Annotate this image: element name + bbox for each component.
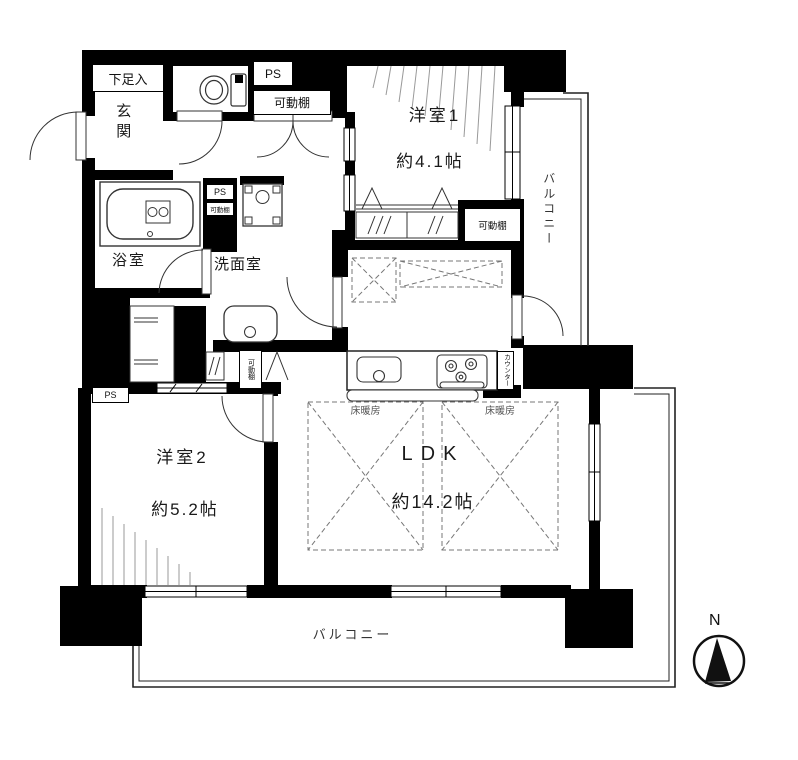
- counter-box: カウンター: [497, 351, 514, 390]
- movable-shelf-box: 可動棚: [464, 208, 521, 242]
- entrance-label: 玄関: [114, 103, 131, 143]
- balcony-right-label: バルコニー: [541, 172, 555, 247]
- room2-closet: [130, 306, 174, 382]
- vanity-sink-icon: [224, 306, 277, 342]
- washroom-label: 洗面室: [214, 256, 262, 273]
- floor-heating-label: 床暖房: [442, 406, 558, 418]
- ps-label: PS: [265, 67, 281, 81]
- room2-label: 洋室2: [120, 448, 245, 468]
- stove-icon: [437, 355, 487, 388]
- room1-label: 洋室1: [360, 106, 510, 126]
- compass-needle-icon: [705, 638, 731, 682]
- kitchen-counter: [347, 351, 497, 401]
- ldk-door: [287, 277, 342, 328]
- movable-shelf-label: 可動棚: [246, 359, 256, 380]
- ldk-right-window: [589, 424, 600, 521]
- refrigerator-space: [352, 258, 396, 302]
- room1-size-label: 約4.1帖: [355, 152, 505, 172]
- floor-heating-label: 床暖房: [308, 406, 423, 418]
- floor-heating-area: [308, 402, 423, 550]
- balcony-right-rail: [563, 93, 588, 346]
- shoe-storage-label: 下足入: [108, 69, 147, 88]
- ps-box: PS: [92, 387, 129, 403]
- toilet-icon: [200, 74, 246, 106]
- ps-box: PS: [253, 61, 293, 86]
- movable-shelf-label: 可動棚: [274, 94, 310, 111]
- service-balcony-door: [512, 295, 563, 339]
- toilet-door: [177, 111, 222, 164]
- floor-plan: 下足入 PS 可動棚 PS 可動棚 PS 可動棚 可動棚 カウンター 玄関 浴室…: [0, 0, 798, 760]
- ps-box: PS: [206, 184, 234, 200]
- bathroom-door: [159, 249, 211, 294]
- closet-sliding-door: [157, 383, 227, 393]
- hanger-icon: [362, 188, 382, 209]
- movable-shelf-label: 可動棚: [210, 204, 230, 214]
- kitchen-sink-icon: [357, 357, 401, 382]
- room2-size-label: 約5.2帖: [110, 500, 260, 520]
- balcony-bottom-label: バルコニー: [270, 628, 435, 643]
- storage-space: [400, 261, 502, 287]
- washer-pan-icon: [243, 184, 282, 226]
- room2-ceiling-hatch: [102, 508, 190, 585]
- north-label: N: [709, 612, 721, 630]
- ps-label: PS: [104, 390, 116, 400]
- hanger-icon: [432, 188, 452, 209]
- entrance-door: [30, 112, 86, 160]
- compass: [694, 636, 744, 686]
- ldk-size-label: 約14.2帖: [348, 492, 518, 513]
- movable-shelf-label: 可動棚: [478, 218, 507, 232]
- shoe-storage-box: 下足入: [92, 64, 164, 92]
- room2-door: [222, 394, 273, 442]
- hall-closet-double-door: [254, 111, 332, 157]
- floor-heating-area: [442, 402, 558, 550]
- movable-shelf-box: 可動棚: [206, 202, 234, 216]
- counter-label: カウンター: [501, 354, 511, 387]
- bathroom-label: 浴室: [112, 252, 146, 269]
- ldk-label: LDK: [358, 443, 508, 466]
- movable-shelf-box: 可動棚: [253, 90, 331, 115]
- bathtub-icon: [100, 182, 200, 246]
- ldk-bottom-window: [391, 586, 501, 597]
- room2-bottom-window: [145, 586, 247, 597]
- ps-label: PS: [214, 187, 226, 197]
- room1-closet: [356, 188, 458, 238]
- movable-shelf-box: 可動棚: [239, 350, 262, 389]
